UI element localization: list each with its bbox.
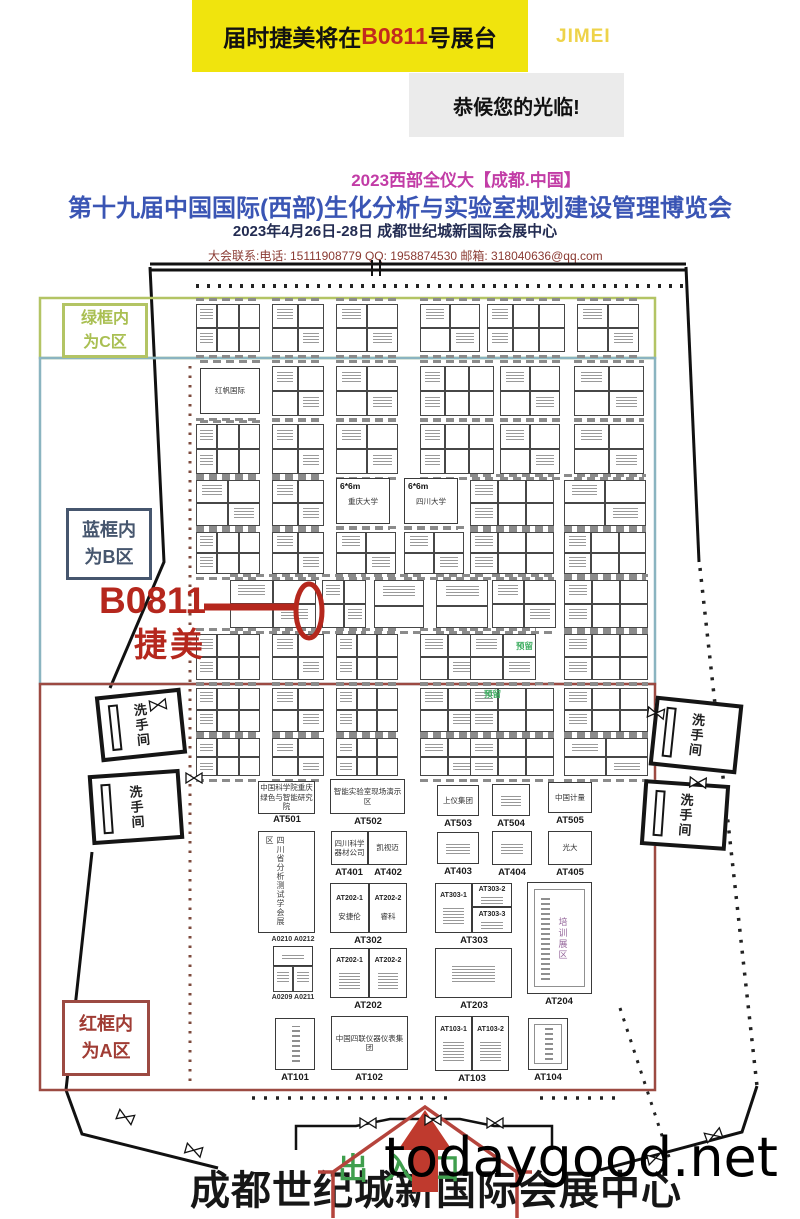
booth-row-codes	[200, 360, 260, 363]
booth-name: 中国四联仪器仪表集团	[332, 1034, 407, 1053]
booth-code-AT403: AT403	[430, 866, 486, 878]
booth-AT202-1: AT202-1安捷伦	[330, 883, 369, 933]
booth-cell	[239, 328, 260, 352]
booth-cell	[445, 449, 470, 474]
booth-row-codes	[420, 418, 494, 421]
reserved-label: 预留	[516, 640, 540, 652]
booth-cell	[357, 657, 378, 680]
booth-row-codes	[196, 682, 260, 685]
booth-cell	[592, 604, 620, 628]
booth-row-codes	[420, 779, 476, 782]
booth-cell	[608, 328, 639, 352]
booth-cell	[620, 710, 648, 732]
booth-cell	[500, 424, 530, 449]
booth-row-codes	[336, 682, 398, 685]
booth-row-codes	[272, 355, 324, 358]
booth-name: 重庆大学	[340, 496, 386, 507]
booth-name: 中国科学院重庆绿色与智能研究院	[259, 783, 314, 811]
booth-row-codes	[564, 526, 646, 529]
zone-c-line1: 绿框内	[81, 307, 129, 331]
booth-cell	[530, 366, 560, 391]
booth-cell	[239, 657, 260, 680]
booth-row-codes	[564, 682, 648, 685]
booth-AT403	[437, 832, 479, 864]
booth-cluster	[574, 366, 644, 416]
booth-cell	[513, 328, 539, 352]
booth-cell	[620, 688, 648, 710]
booth-cell	[377, 657, 398, 680]
booth-row-codes	[420, 360, 494, 363]
booth-cell	[298, 424, 324, 449]
booth-cell	[336, 688, 357, 710]
booth-cell	[336, 634, 357, 657]
booth-cell	[336, 304, 367, 328]
booth-cluster	[564, 580, 648, 628]
booth-cell	[620, 604, 648, 628]
booth-cell	[574, 366, 609, 391]
booth-cell	[450, 328, 480, 352]
booth-cell	[377, 710, 398, 732]
booth-cell	[500, 449, 530, 474]
booth-cell	[357, 688, 378, 710]
booth-name: 四川大学	[408, 496, 454, 507]
booth-cell	[526, 738, 554, 757]
booth-cell	[239, 424, 260, 449]
booth-name-illegible	[378, 971, 399, 989]
booth-cell	[272, 304, 298, 328]
booth-cell	[526, 503, 554, 526]
booth-cell	[217, 738, 238, 757]
booth-cell	[470, 738, 498, 757]
booth-cluster	[500, 424, 560, 474]
booth-AT203	[435, 948, 512, 998]
booth-cluster	[322, 580, 366, 628]
booth-cell	[239, 634, 260, 657]
restroom: 洗手间	[95, 688, 187, 763]
booth-cell	[367, 449, 398, 474]
booth-AT103-2: AT103-2	[472, 1016, 509, 1071]
booth-row-codes	[230, 574, 316, 577]
booth-row-codes	[564, 732, 648, 735]
booth-cell	[539, 304, 565, 328]
banner-booth-number: B0811	[361, 23, 428, 50]
booth-cell	[539, 328, 565, 352]
booth-cluster	[564, 688, 648, 732]
booth-name-illegible	[443, 906, 463, 924]
booth-cell	[196, 480, 228, 503]
booth-cluster	[272, 532, 324, 574]
booth-cell	[367, 328, 398, 352]
booth-row-codes	[196, 474, 260, 477]
booth-cell	[469, 424, 494, 449]
banner-text-post: 号展台	[428, 19, 497, 53]
booth-A02-top	[273, 946, 313, 966]
booth-cluster	[336, 532, 396, 574]
booth-cell	[487, 328, 513, 352]
booth-cell	[445, 366, 470, 391]
booth-cell	[374, 606, 424, 629]
booth-name-illegible	[292, 1026, 300, 1062]
booth-cell	[336, 391, 367, 416]
booth-cell	[377, 688, 398, 710]
booth-cell	[420, 391, 445, 416]
booth-cell	[336, 657, 357, 680]
booth-row-codes	[500, 418, 560, 421]
booth-row-codes	[470, 682, 554, 685]
booth-cell	[592, 710, 620, 732]
booth-code-AT404: AT404	[484, 867, 540, 879]
booth-cell	[487, 304, 513, 328]
booth-row-codes	[492, 574, 556, 577]
booth-cell	[526, 480, 554, 503]
booth-cell	[196, 553, 217, 574]
booth-6x6m: 6*6m重庆大学	[336, 478, 390, 524]
booth-cell	[298, 553, 324, 574]
booth-cell	[404, 553, 434, 574]
booth-cell	[322, 604, 344, 628]
booth-row-codes	[564, 574, 648, 577]
booth-cell	[377, 634, 398, 657]
booth-cluster	[272, 424, 324, 474]
booth-row-codes	[374, 574, 424, 577]
booth-cell	[336, 424, 367, 449]
booth-name: 上仪集团	[442, 796, 474, 805]
booth-row-codes	[577, 355, 639, 358]
booth-cell	[500, 391, 530, 416]
booth-code-AT405: AT405	[542, 867, 598, 879]
booth-cell	[344, 580, 366, 604]
booth-cluster	[196, 688, 260, 732]
booth-cell	[564, 553, 591, 574]
booth-cell	[574, 391, 609, 416]
booth-cell	[196, 710, 217, 732]
booth-cell	[217, 424, 238, 449]
booth-cell	[367, 366, 398, 391]
booth-cell	[272, 710, 298, 732]
booth-row-codes	[272, 418, 324, 421]
booth-cell	[620, 634, 648, 657]
booth-cell	[592, 688, 620, 710]
jimei-logo: JIMEI	[556, 26, 636, 50]
booth-code-AT103: AT103	[444, 1073, 500, 1085]
booth-cell	[336, 449, 367, 474]
booth-cell	[367, 391, 398, 416]
booth-cell	[470, 553, 498, 574]
booth-cell	[239, 738, 260, 757]
booth-cell	[272, 503, 298, 526]
booth-cell	[420, 304, 450, 328]
booth-cell	[564, 503, 605, 526]
booth-cell	[367, 304, 398, 328]
booth-cell	[272, 757, 298, 776]
booth-cell	[217, 634, 238, 657]
booth-cell	[498, 480, 526, 503]
booth-cell	[470, 480, 498, 503]
booth-cell	[322, 580, 344, 604]
booth-cell	[608, 304, 639, 328]
booth-cell	[564, 634, 592, 657]
zone-b-line1: 蓝框内	[82, 517, 136, 544]
booth-AT303-1: AT303-1	[435, 883, 472, 933]
booth-cell	[344, 604, 366, 628]
booth-cell	[420, 738, 448, 757]
booth-cluster	[470, 480, 554, 526]
booth-row-codes	[564, 474, 646, 477]
booth-cell	[564, 604, 592, 628]
booth-cell	[609, 449, 644, 474]
booth-cell	[357, 710, 378, 732]
booth-cell	[445, 391, 470, 416]
booth-cell	[420, 424, 445, 449]
booth-row-codes	[420, 732, 476, 735]
assoc-booth-label: 四川省分析测试学会展区	[266, 836, 284, 928]
booth-code-AT203: AT203	[446, 1000, 502, 1012]
booth-cluster	[336, 738, 398, 776]
booth-cell	[336, 553, 366, 574]
booth-cell	[577, 304, 608, 328]
booth-cell	[470, 503, 498, 526]
booth-cell	[605, 503, 646, 526]
booth-cell	[420, 657, 448, 680]
booth-cluster	[577, 304, 639, 352]
booth-codes-small: A0209 A0211	[269, 994, 317, 1004]
booth-AT402: 凯视迈	[368, 831, 407, 865]
booth-cell	[564, 532, 591, 553]
training-zone-label: 培训展区	[556, 894, 570, 984]
booth-cell	[434, 532, 464, 553]
booth-cell	[298, 532, 324, 553]
booth-name: 四川科学器材公司	[332, 839, 367, 858]
booth-cell	[217, 532, 238, 553]
booth-row-codes	[470, 474, 554, 477]
booth-name-illegible	[501, 794, 522, 805]
booth-cell	[605, 480, 646, 503]
booth-cell	[272, 391, 298, 416]
booth-cluster	[404, 532, 464, 574]
booth-named-small: 红帆国际	[200, 368, 260, 414]
booth-cell	[606, 757, 648, 776]
booth-size: 6*6m	[340, 481, 386, 491]
booth-cluster	[336, 424, 398, 474]
booth-row-codes	[336, 360, 398, 363]
booth-AT303-3: AT303-3	[472, 907, 512, 933]
booth-cell	[367, 424, 398, 449]
booth-cell	[298, 328, 324, 352]
booth-row-codes	[272, 732, 324, 735]
booth-code-AT503: AT503	[430, 818, 486, 830]
booth-row-codes	[574, 360, 644, 363]
booth-cell	[420, 328, 450, 352]
booth-cell	[420, 634, 448, 657]
booth-cluster	[336, 304, 398, 352]
booth-row-codes	[564, 628, 648, 631]
booth-cluster	[492, 580, 556, 628]
booth-cell	[620, 580, 648, 604]
booth-cluster	[196, 424, 260, 474]
booth-subcode: AT303-1	[440, 892, 467, 899]
booth-cell	[336, 328, 367, 352]
booth-cell	[513, 304, 539, 328]
booth-cell	[272, 532, 298, 553]
booth-cell	[530, 391, 560, 416]
booth-cell	[470, 657, 503, 680]
booth-cell	[272, 480, 298, 503]
booth-cell	[620, 657, 648, 680]
booth-cell	[196, 757, 217, 776]
booth-row-codes	[196, 298, 260, 301]
booth-subcode: AT202-2	[375, 957, 402, 964]
booth-cell	[492, 604, 524, 628]
booth-cell	[564, 710, 592, 732]
exhibition-poster: 届时捷美将在B0811号展台 JIMEI 恭候您的光临! 2023西部全仪大【成…	[0, 0, 800, 1219]
booth-row-codes	[196, 779, 260, 782]
booth-cell	[298, 391, 324, 416]
booth-row-codes	[574, 418, 644, 421]
booth-cell	[498, 757, 526, 776]
booth-cell	[564, 580, 592, 604]
booth-cell	[498, 710, 526, 732]
booth-cluster	[420, 688, 476, 732]
booth-name-illegible	[480, 1041, 500, 1061]
booth-subcode: AT103-1	[440, 1026, 467, 1033]
booth-cluster	[564, 532, 646, 574]
booth-cell	[445, 424, 470, 449]
restroom-label: 洗手间	[125, 784, 147, 830]
booth-cell	[272, 657, 298, 680]
booth-cell	[217, 757, 238, 776]
booth-name: 凯视迈	[375, 843, 400, 852]
booth-cell	[298, 449, 324, 474]
booth-code-AT501: AT501	[259, 814, 315, 826]
booth-AT503: 上仪集团	[437, 785, 479, 816]
booth-cell	[273, 580, 316, 604]
booth-cell	[492, 580, 524, 604]
booth-code-AT202: AT202	[340, 1000, 396, 1012]
booth-size: 6*6m	[408, 481, 454, 491]
booth-cell	[298, 634, 324, 657]
booth-cell	[196, 532, 217, 553]
booth-subcode: AT303-2	[479, 886, 506, 893]
booth-cell	[498, 532, 526, 553]
booth-cell	[272, 424, 298, 449]
booth-cluster	[230, 580, 316, 628]
booth-row-codes	[577, 298, 639, 301]
booth-code-AT104: AT104	[520, 1072, 576, 1084]
banner-text-pre: 届时捷美将在	[223, 19, 361, 53]
booth-cell	[526, 710, 554, 732]
booth-cell	[609, 391, 644, 416]
booth-codes-small: A0210 A0212	[269, 936, 317, 946]
booth-cell	[524, 580, 556, 604]
booth-row-codes	[487, 355, 565, 358]
booth-cell	[526, 757, 554, 776]
booth-cluster	[420, 304, 480, 352]
booth-cell	[450, 304, 480, 328]
booth-code-AT402: AT402	[360, 867, 416, 879]
booth-cell	[196, 449, 217, 474]
zone-label-a: 红框内 为A区	[62, 1000, 150, 1076]
booth-AT303-2: AT303-2	[472, 883, 512, 907]
booth-AT404	[492, 831, 532, 865]
booth-cell	[273, 604, 316, 628]
booth-cell	[420, 366, 445, 391]
booth-cell	[469, 449, 494, 474]
watermark: todaygood.net	[384, 1126, 778, 1189]
booth-cluster	[574, 424, 644, 474]
restroom-label: 洗手间	[674, 792, 696, 838]
booth-cell	[357, 634, 378, 657]
booth-row-codes	[336, 732, 398, 735]
zone-label-b: 蓝框内 为B区	[66, 508, 152, 580]
booth-cell	[574, 449, 609, 474]
booth-AT501: 中国科学院重庆绿色与智能研究院	[258, 781, 315, 814]
booth-row-codes	[420, 298, 480, 301]
booth-row-codes	[196, 526, 260, 529]
booth-cell	[217, 328, 238, 352]
booth-cell	[619, 532, 646, 553]
booth-cell	[298, 480, 324, 503]
booth-name-illegible	[282, 953, 304, 960]
booth-name-illegible	[481, 920, 503, 929]
booth-cluster	[272, 480, 324, 526]
booth-cell	[196, 738, 217, 757]
booth-name-illegible	[446, 842, 469, 853]
booth-cell	[500, 366, 530, 391]
booth-row-codes	[272, 474, 324, 477]
booth-cluster	[336, 688, 398, 732]
booth-name: 红帆国际	[214, 386, 246, 395]
booth-cell	[298, 503, 324, 526]
booth-row-codes	[196, 355, 260, 358]
booth-cluster	[420, 634, 476, 680]
booth-cluster	[564, 480, 646, 526]
booth-row-codes	[336, 418, 398, 421]
booth-cell	[196, 328, 217, 352]
booth-6x6m: 6*6m四川大学	[404, 478, 458, 524]
promo-banner: 届时捷美将在B0811号展台	[192, 0, 528, 72]
booth-cluster	[420, 738, 476, 776]
booth-cluster	[487, 304, 565, 352]
restroom: 洗手间	[640, 779, 730, 851]
booth-cell	[336, 366, 367, 391]
booth-cell	[336, 532, 366, 553]
booth-name-illegible	[545, 1028, 553, 1060]
booth-cell	[377, 757, 398, 776]
booth-cluster	[470, 688, 554, 732]
booth-code-AT102: AT102	[341, 1072, 397, 1084]
booth-code-AT303: AT303	[446, 935, 502, 947]
booth-row-codes	[336, 527, 390, 530]
highlight-booth-code: B0811	[74, 580, 206, 622]
booth-row-codes	[470, 628, 536, 631]
restroom-label: 洗手间	[129, 702, 153, 749]
booth-cluster	[196, 738, 260, 776]
booth-name: 智能实验室现场演示区	[331, 787, 404, 806]
booth-cell	[336, 738, 357, 757]
booth-cell	[298, 657, 324, 680]
booth-AT202-2: AT202-2睿科	[369, 883, 407, 933]
booth-cell	[436, 580, 488, 606]
booth-cell	[404, 532, 434, 553]
booth-row-codes	[487, 298, 565, 301]
booth-cell	[606, 738, 648, 757]
booth-cluster	[564, 634, 648, 680]
booth-row-codes	[420, 628, 476, 631]
booth-cell	[272, 634, 298, 657]
booth-cluster	[374, 580, 424, 628]
booth-name: 中国计量	[554, 793, 586, 802]
booth-cell	[298, 710, 324, 732]
